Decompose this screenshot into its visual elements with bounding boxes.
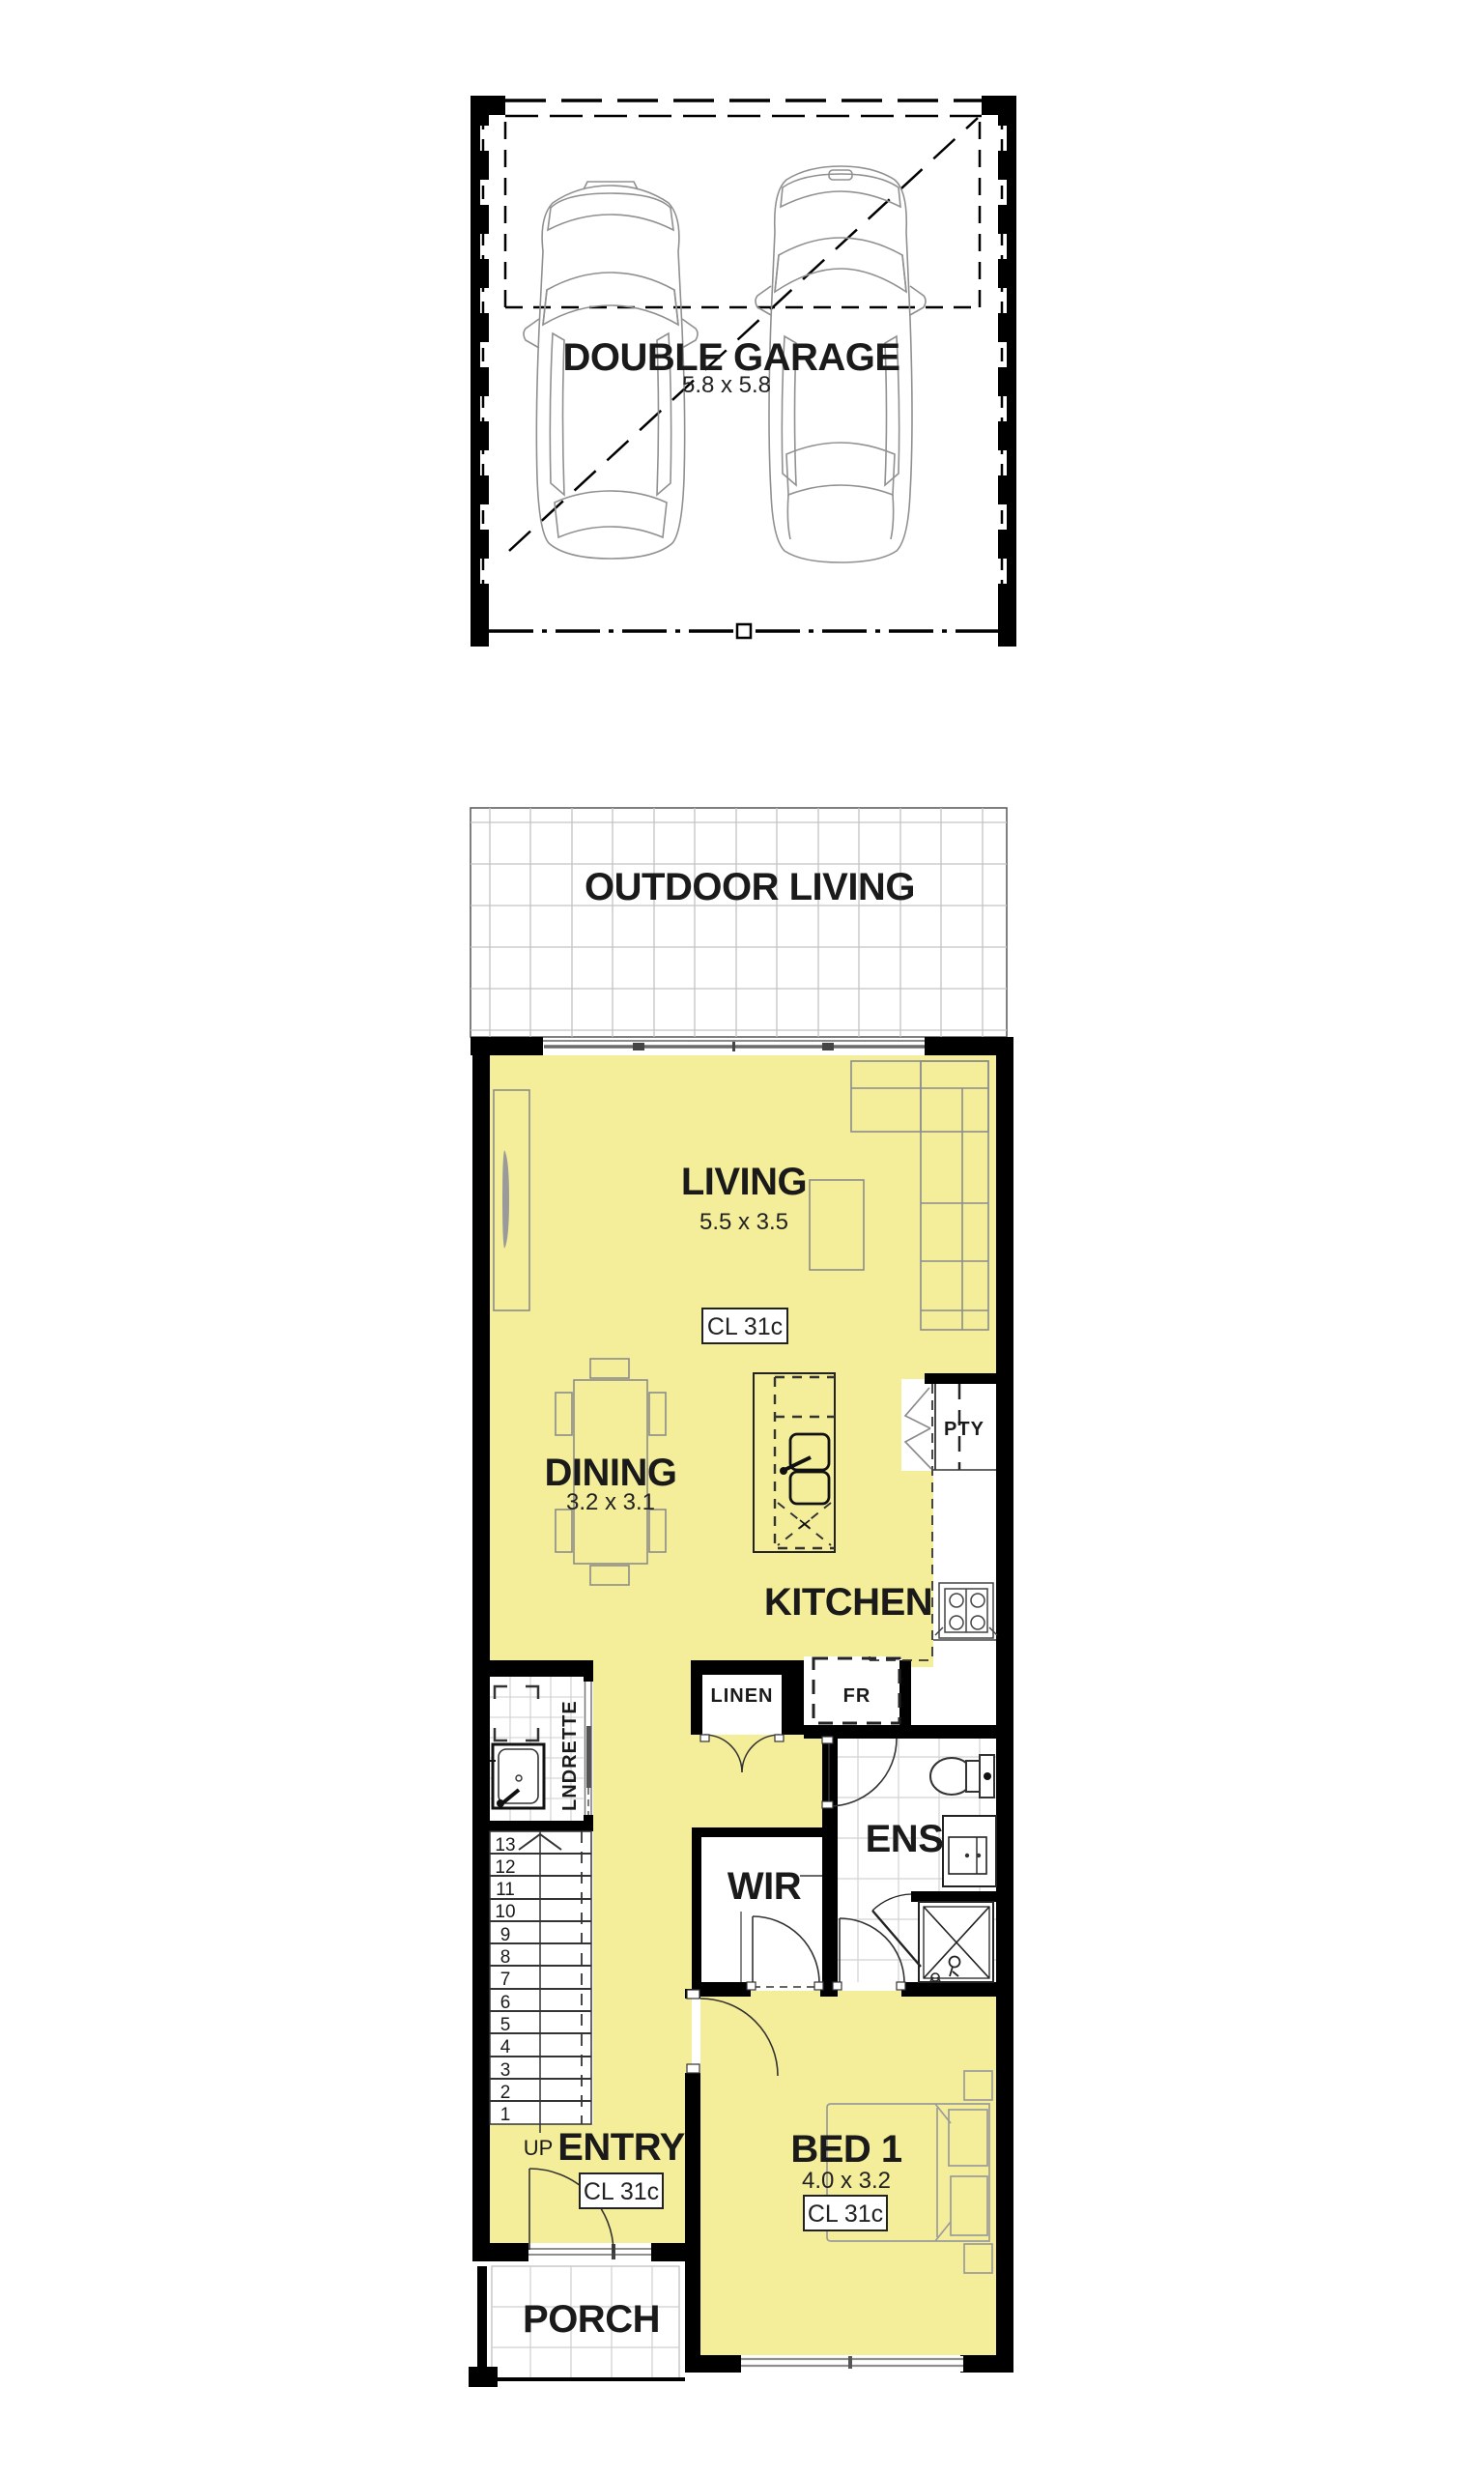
svg-text:13: 13 (495, 1835, 515, 1855)
svg-text:BED 1: BED 1 (790, 2128, 902, 2171)
svg-text:PTY: PTY (944, 1419, 985, 1440)
svg-text:FR: FR (843, 1685, 871, 1707)
svg-text:8: 8 (500, 1947, 511, 1968)
svg-text:9: 9 (500, 1925, 511, 1945)
svg-text:CL 31c: CL 31c (584, 2178, 659, 2205)
svg-text:6: 6 (500, 1993, 511, 2013)
svg-text:LNDRETTE: LNDRETTE (559, 1700, 581, 1811)
svg-text:LINEN: LINEN (711, 1685, 774, 1707)
svg-text:LIVING: LIVING (681, 1161, 807, 1203)
svg-text:5.8 x 5.8: 5.8 x 5.8 (682, 372, 771, 398)
svg-text:WIR: WIR (728, 1865, 802, 1908)
svg-text:CL 31c: CL 31c (707, 1313, 783, 1340)
svg-text:ENS: ENS (866, 1818, 944, 1860)
svg-text:ENTRY: ENTRY (557, 2126, 685, 2169)
svg-text:2: 2 (500, 2083, 511, 2103)
svg-text:CL 31c: CL 31c (808, 2201, 883, 2228)
svg-text:3: 3 (500, 2060, 511, 2081)
svg-text:OUTDOOR LIVING: OUTDOOR LIVING (585, 866, 915, 908)
svg-text:UP: UP (524, 2136, 554, 2160)
svg-text:KITCHEN: KITCHEN (764, 1581, 932, 1624)
svg-text:PORCH: PORCH (523, 2298, 660, 2341)
svg-text:5.5 x 3.5: 5.5 x 3.5 (699, 1209, 788, 1235)
svg-text:5: 5 (500, 2015, 511, 2035)
svg-text:3.2 x 3.1: 3.2 x 3.1 (566, 1489, 655, 1515)
svg-text:7: 7 (500, 1970, 511, 1990)
svg-text:4: 4 (500, 2037, 511, 2057)
svg-text:10: 10 (495, 1902, 515, 1922)
svg-text:12: 12 (495, 1857, 515, 1878)
svg-text:4.0 x 3.2: 4.0 x 3.2 (802, 2168, 891, 2194)
svg-text:1: 1 (500, 2105, 511, 2125)
svg-text:DINING: DINING (545, 1452, 677, 1494)
svg-text:11: 11 (496, 1880, 515, 1900)
